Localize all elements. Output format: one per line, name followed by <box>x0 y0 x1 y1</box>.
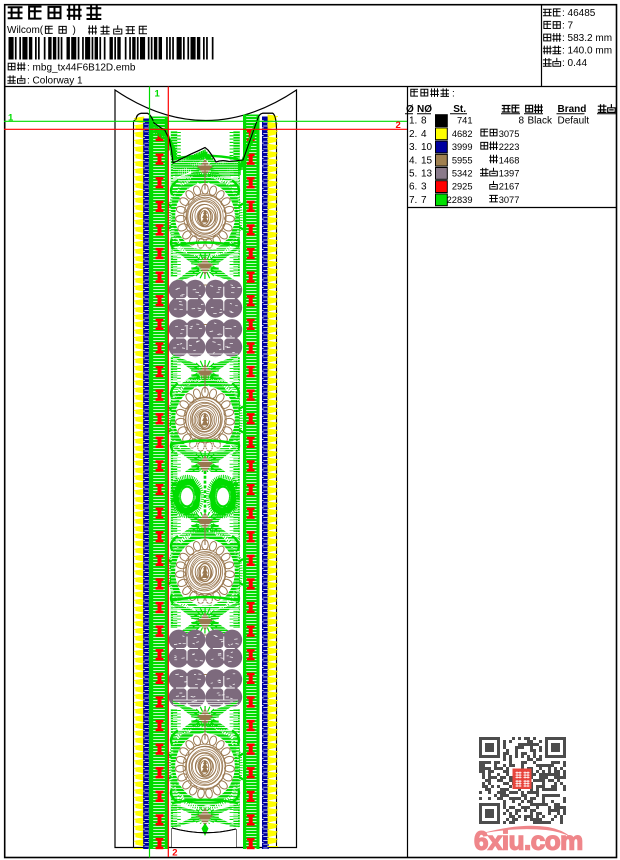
svg-text:: 140.0 mm: : 140.0 mm <box>562 46 612 57</box>
svg-text:5955: 5955 <box>452 155 473 165</box>
svg-text:13: 13 <box>421 169 433 180</box>
svg-text:1397: 1397 <box>499 169 520 179</box>
svg-text:15: 15 <box>421 155 433 166</box>
svg-text:2.: 2. <box>409 129 417 140</box>
svg-text:6.: 6. <box>409 182 417 193</box>
svg-text:8: 8 <box>421 116 427 127</box>
svg-text:2223: 2223 <box>499 142 520 152</box>
svg-text:): ) <box>73 25 76 36</box>
svg-text:4: 4 <box>421 129 427 140</box>
svg-text:7: 7 <box>421 195 427 206</box>
svg-text:5342: 5342 <box>452 169 473 179</box>
svg-text:Black: Black <box>528 116 553 127</box>
svg-text:Default: Default <box>558 116 590 127</box>
svg-text:: 7: : 7 <box>562 21 574 32</box>
svg-text:3: 3 <box>421 182 427 193</box>
svg-text:4682: 4682 <box>452 129 473 139</box>
svg-text:7.: 7. <box>409 195 417 206</box>
svg-text:1468: 1468 <box>499 155 520 165</box>
svg-text::: : <box>452 89 455 100</box>
svg-text:2925: 2925 <box>452 182 473 192</box>
svg-text:1: 1 <box>8 112 14 123</box>
svg-text:1: 1 <box>155 89 161 100</box>
svg-text:8: 8 <box>518 116 524 127</box>
svg-text:3077: 3077 <box>499 195 520 205</box>
svg-text:: 46485: : 46485 <box>562 8 596 19</box>
svg-text:3.: 3. <box>409 142 417 153</box>
svg-text:Wilcom(: Wilcom( <box>7 25 44 36</box>
svg-text:: 0.44: : 0.44 <box>562 58 587 69</box>
svg-text:: Colorway 1: : Colorway 1 <box>27 76 83 87</box>
svg-text:2167: 2167 <box>499 182 520 192</box>
svg-text:1.: 1. <box>409 116 417 127</box>
svg-text:10: 10 <box>421 142 433 153</box>
svg-text:6xiu.com: 6xiu.com <box>474 826 583 856</box>
svg-text:5.: 5. <box>409 169 417 180</box>
svg-text:2: 2 <box>396 120 401 131</box>
svg-text:3075: 3075 <box>499 129 520 139</box>
svg-text:: mbg_tx44F6B12D.emb: : mbg_tx44F6B12D.emb <box>27 63 136 74</box>
svg-text:741: 741 <box>457 116 473 126</box>
svg-text:: 583.2 mm: : 583.2 mm <box>562 33 612 44</box>
svg-text:4.: 4. <box>409 155 417 166</box>
svg-text:2: 2 <box>172 848 177 859</box>
svg-text:3999: 3999 <box>452 142 473 152</box>
svg-text:22839: 22839 <box>447 195 473 205</box>
